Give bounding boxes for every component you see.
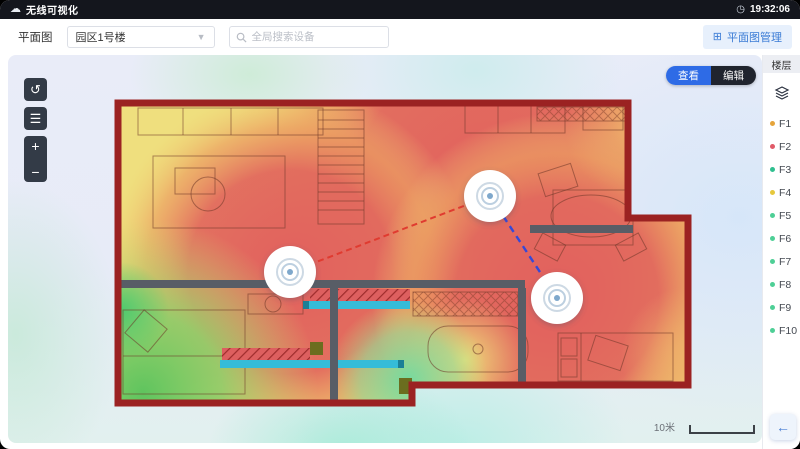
floorplan-heatmap[interactable] <box>113 98 693 408</box>
floor-status-dot <box>770 328 775 333</box>
floorplan-manage-button[interactable]: ⊞ 平面图管理 <box>703 25 792 49</box>
layers-button[interactable] <box>772 83 792 106</box>
floor-item-f1[interactable]: F1 <box>763 112 800 135</box>
floor-item-f9[interactable]: F9 <box>763 296 800 319</box>
floor-status-dot <box>770 305 775 310</box>
floor-status-dot <box>770 259 775 264</box>
collapse-sidebar-button[interactable]: ← <box>770 414 796 440</box>
floor-status-dot <box>770 121 775 126</box>
undo-icon: ↺ <box>30 82 41 98</box>
edit-tab[interactable]: 编辑 <box>711 66 756 85</box>
floor-status-dot <box>770 167 775 172</box>
cyan-wall <box>220 360 404 368</box>
view-tab[interactable]: 查看 <box>666 66 711 85</box>
global-search[interactable] <box>229 26 389 48</box>
floor-item-f8[interactable]: F8 <box>763 273 800 296</box>
floor-item-f2[interactable]: F2 <box>763 135 800 158</box>
floor-list: F1 F2 F3 F4 F5 F6 F7 F8 F9 F10 <box>763 112 800 342</box>
heatmap-layer <box>113 98 693 408</box>
app-window: ☁ 无线可视化 ◷ 19:32:06 平面图 园区1号楼 ▼ ⊞ 平面图管理 <box>0 0 800 449</box>
floor-item-f3[interactable]: F3 <box>763 158 800 181</box>
scale-label: 10米 <box>654 419 675 434</box>
undo-button[interactable]: ↺ <box>24 78 47 101</box>
top-bar: ☁ 无线可视化 ◷ 19:32:06 <box>0 0 800 19</box>
zoom-control: + − <box>24 136 47 182</box>
building-select[interactable]: 园区1号楼 ▼ <box>67 26 215 48</box>
page-label: 平面图 <box>18 29 53 45</box>
view-edit-toggle: 查看 编辑 <box>666 66 756 85</box>
floor-item-f4[interactable]: F4 <box>763 181 800 204</box>
floor-status-dot <box>770 282 775 287</box>
app-title: 无线可视化 <box>26 2 79 17</box>
floor-sidebar: 楼层 F1 F2 F3 F4 F5 F6 F7 F8 F9 F10 <box>762 55 800 449</box>
floor-status-dot <box>770 213 775 218</box>
building-select-value: 园区1号楼 <box>76 29 126 45</box>
floor-status-dot <box>770 236 775 241</box>
floor-status-dot <box>770 190 775 195</box>
fixture <box>310 342 323 355</box>
chevron-down-icon: ▼ <box>197 32 206 42</box>
ap-device-3[interactable] <box>531 272 583 324</box>
ap-device-1[interactable] <box>464 170 516 222</box>
hatched-wall <box>310 289 410 301</box>
list-icon: ☰ <box>30 111 42 127</box>
layers-icon <box>774 85 790 101</box>
map-scale: 10米 <box>654 419 755 434</box>
hatched-wall <box>222 348 310 360</box>
clock-icon: ◷ <box>736 5 745 15</box>
main-area: ↺ ☰ + − 查看 编辑 <box>0 55 800 449</box>
ap-device-2[interactable] <box>264 246 316 298</box>
floor-item-f10[interactable]: F10 <box>763 319 800 342</box>
search-input[interactable] <box>252 31 382 43</box>
zoom-out-button[interactable]: − <box>31 165 39 179</box>
legend-list-button[interactable]: ☰ <box>24 107 47 130</box>
floor-status-dot <box>770 144 775 149</box>
floor-item-f5[interactable]: F5 <box>763 204 800 227</box>
floor-item-f7[interactable]: F7 <box>763 250 800 273</box>
scale-bar <box>689 427 755 434</box>
zoom-in-button[interactable]: + <box>31 139 39 153</box>
map-canvas[interactable]: ↺ ☰ + − 查看 编辑 <box>8 55 762 443</box>
cyan-wall <box>303 301 410 309</box>
arrow-left-icon: ← <box>776 419 790 435</box>
cloud-icon: ☁ <box>10 4 21 15</box>
canvas-tools: ↺ ☰ + − <box>24 78 47 182</box>
floorplan-manage-icon: ⊞ <box>713 32 722 43</box>
floor-panel-header: 楼层 <box>763 55 800 73</box>
floor-item-f6[interactable]: F6 <box>763 227 800 250</box>
system-time: 19:32:06 <box>750 4 790 15</box>
toolbar: 平面图 园区1号楼 ▼ ⊞ 平面图管理 <box>0 19 800 55</box>
search-icon <box>236 32 247 43</box>
